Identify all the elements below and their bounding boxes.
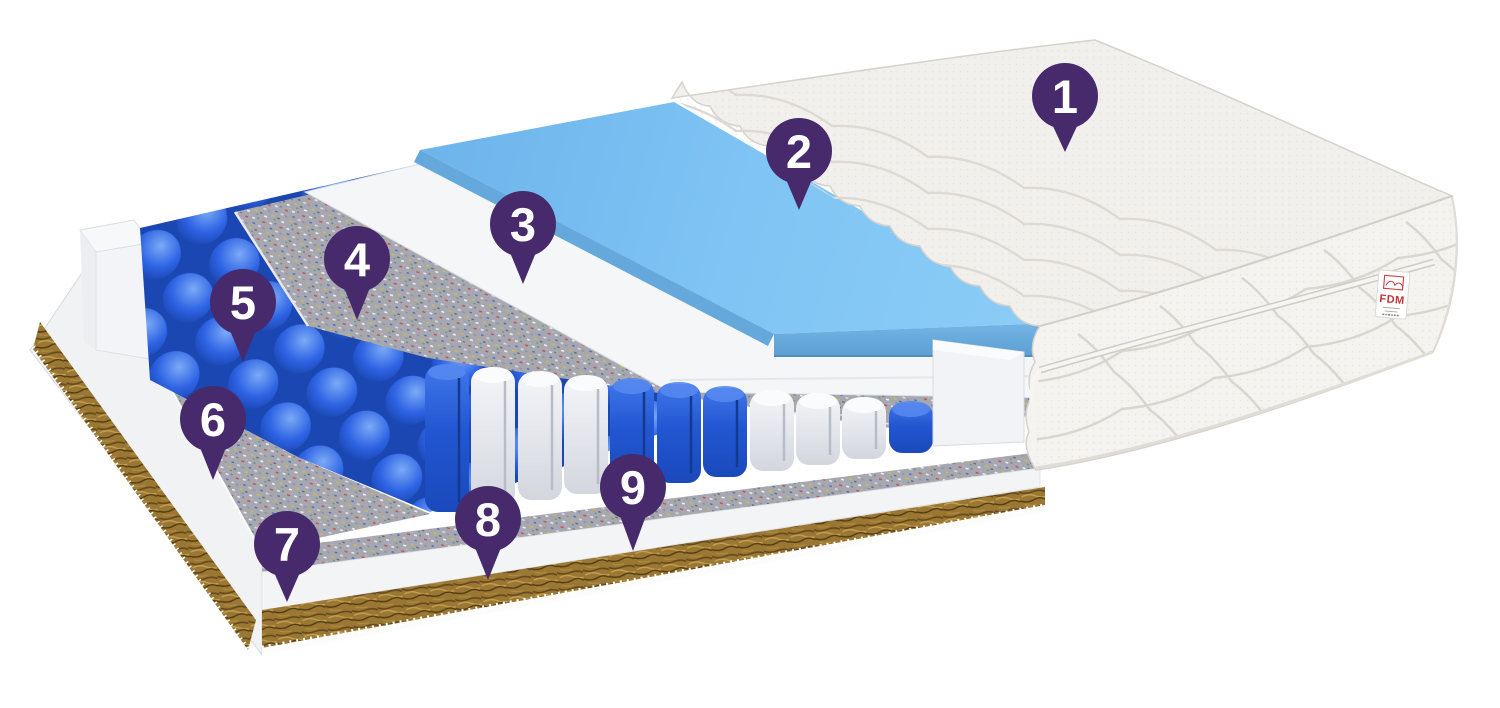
callout-number: 4	[344, 233, 370, 286]
callout-number: 7	[274, 518, 300, 571]
mattress-cutaway-illustration: FDM 1 2 3 4 5 6	[0, 0, 1500, 708]
brand-tag: FDM	[1375, 270, 1410, 320]
callout-number: 3	[510, 198, 536, 251]
brand-tag-text: FDM	[1379, 293, 1405, 307]
callout-number: 9	[620, 461, 646, 514]
mattress-layers-figure: FDM 1 2 3 4 5 6	[0, 0, 1500, 708]
callout-number: 8	[475, 493, 501, 546]
callout-number: 5	[230, 276, 256, 329]
callout-number: 2	[786, 125, 812, 178]
callout-number: 1	[1052, 70, 1078, 123]
callout-number: 6	[200, 393, 226, 446]
